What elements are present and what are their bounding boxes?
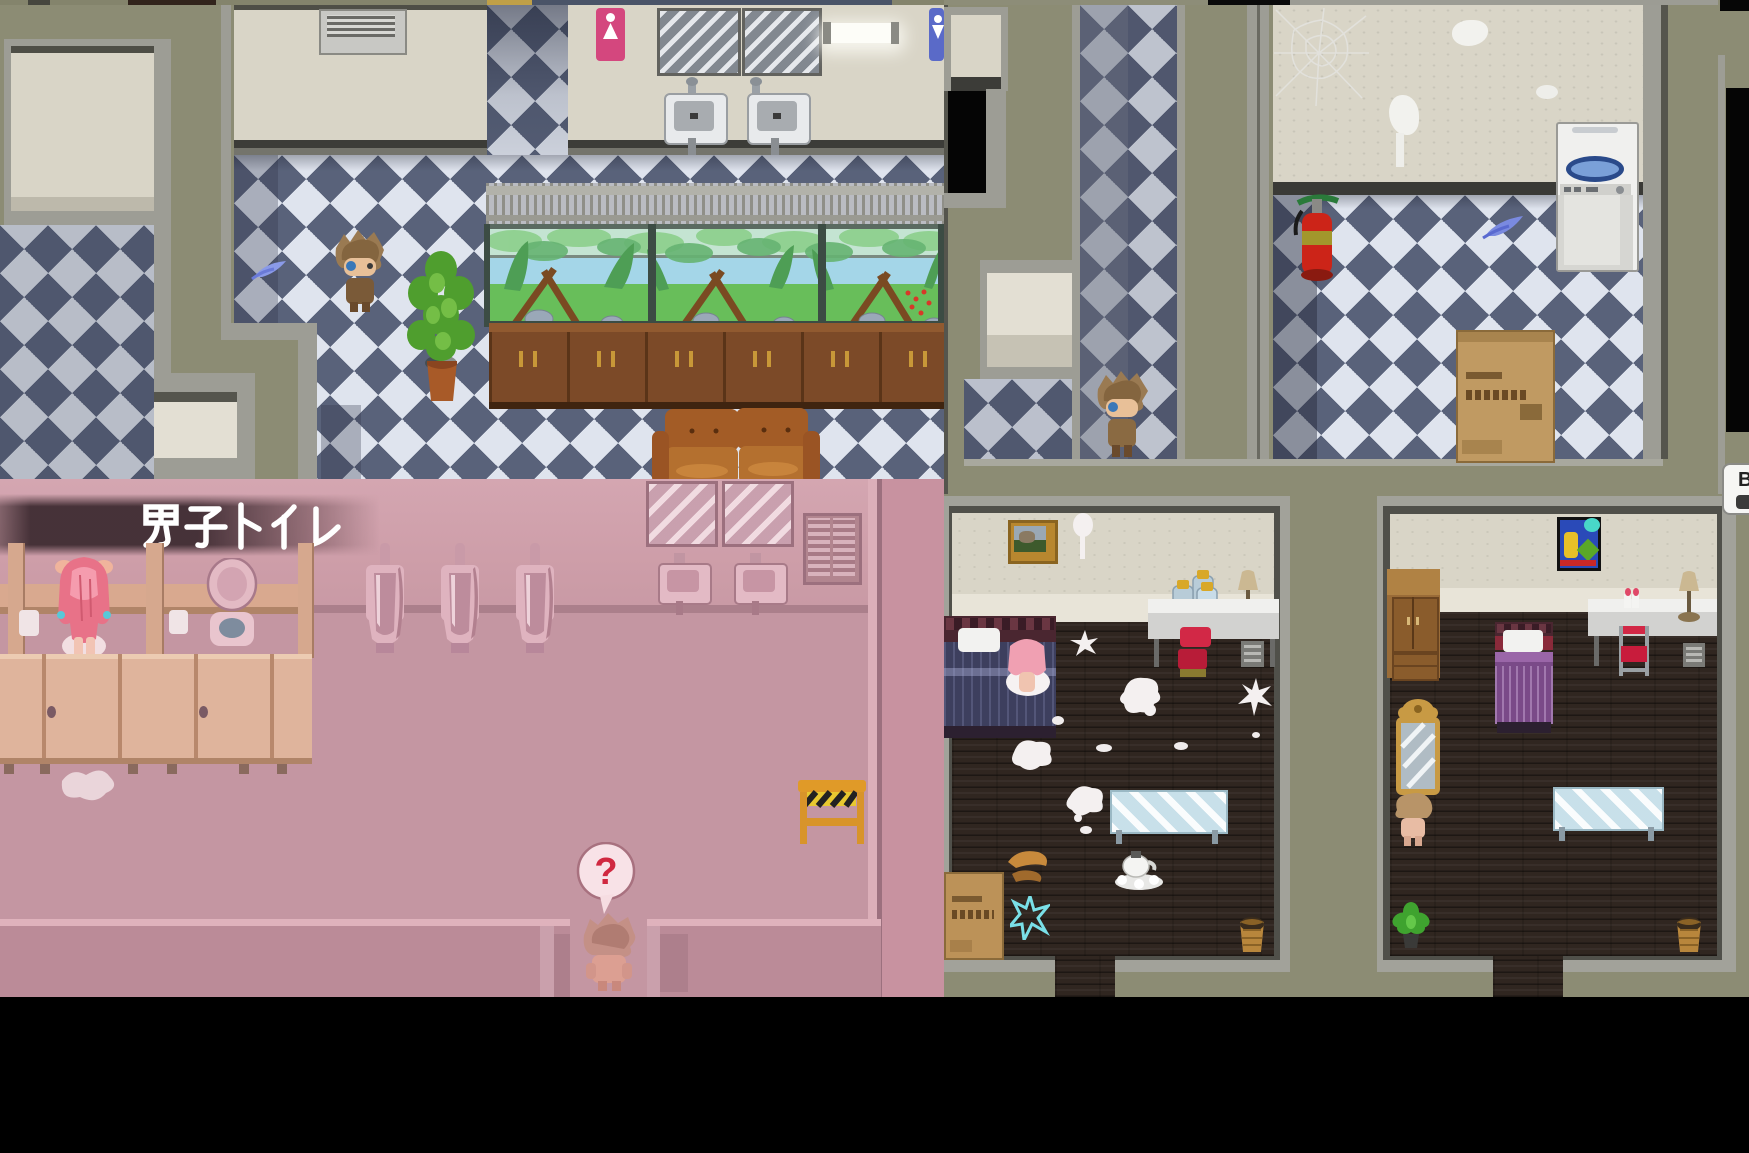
svg-text:?: ? bbox=[594, 851, 617, 893]
